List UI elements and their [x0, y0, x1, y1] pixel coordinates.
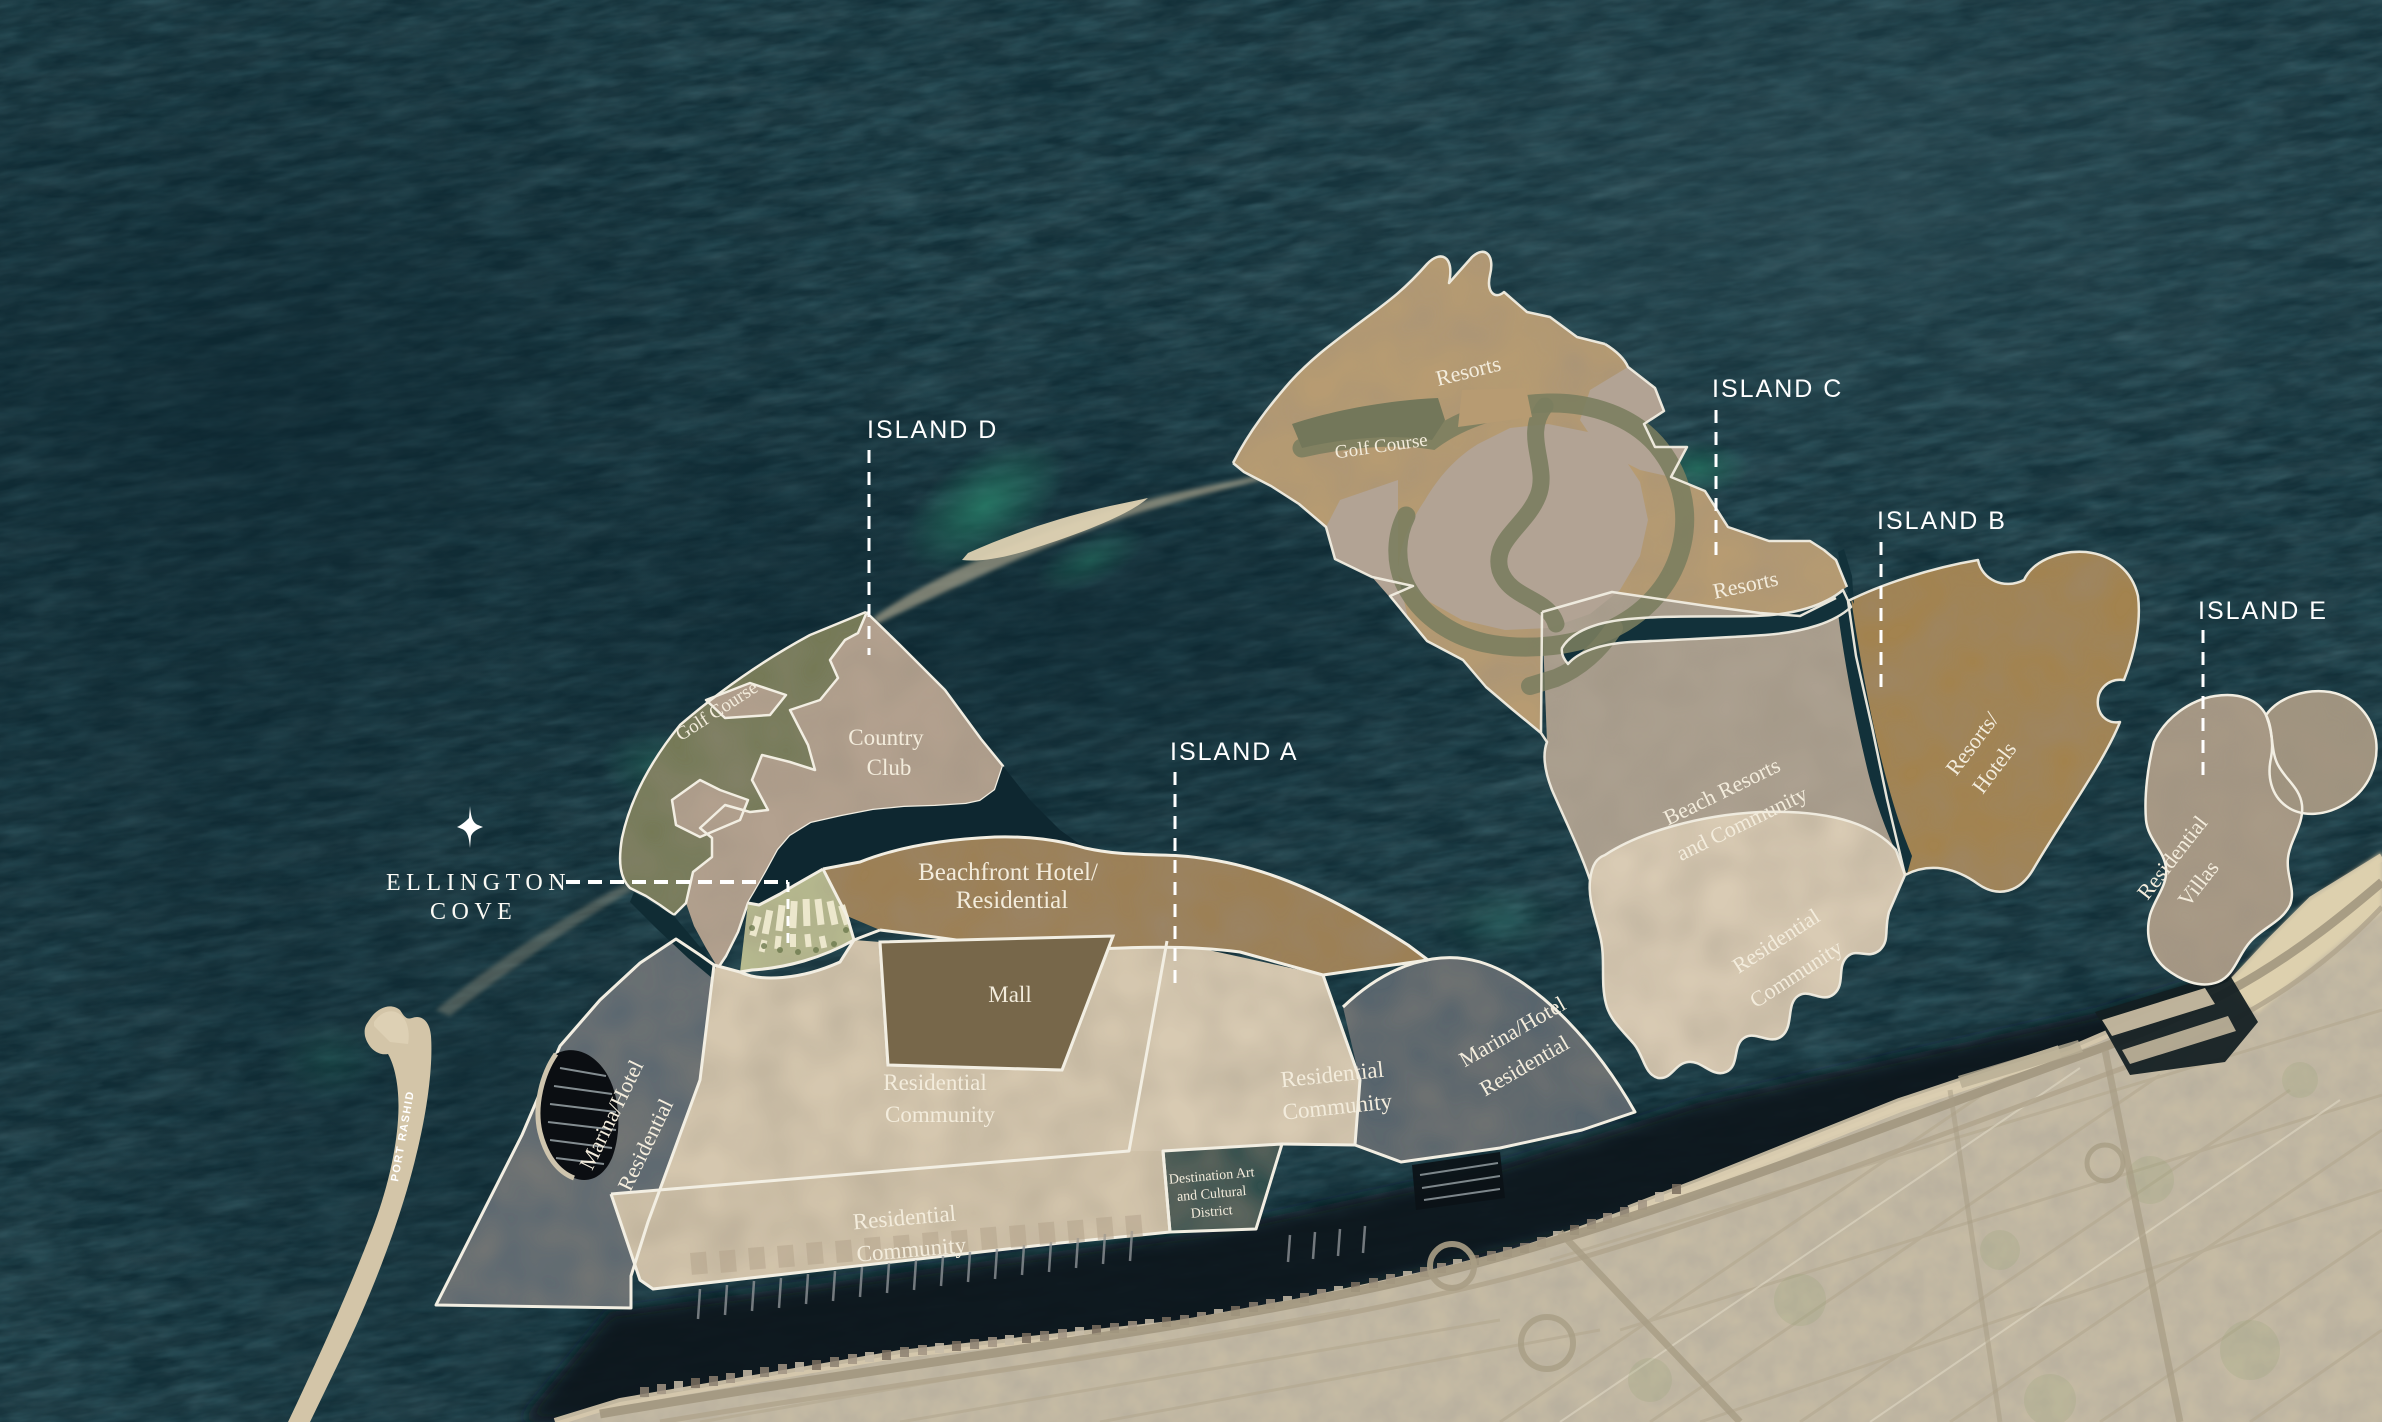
svg-text:COVE: COVE: [430, 899, 517, 925]
svg-text:ISLAND E: ISLAND E: [2198, 597, 2328, 625]
svg-text:Club: Club: [867, 755, 912, 780]
svg-text:Country: Country: [848, 725, 924, 750]
svg-text:ISLAND D: ISLAND D: [867, 416, 998, 444]
svg-text:ELLINGTON: ELLINGTON: [386, 870, 571, 896]
svg-text:Residential: Residential: [956, 887, 1069, 914]
svg-text:Mall: Mall: [988, 982, 1031, 1007]
svg-text:ISLAND A: ISLAND A: [1170, 738, 1299, 766]
svg-text:Residential: Residential: [883, 1070, 986, 1095]
svg-text:ISLAND C: ISLAND C: [1712, 375, 1843, 403]
svg-text:Community: Community: [885, 1102, 995, 1127]
svg-text:ISLAND B: ISLAND B: [1877, 507, 2007, 535]
svg-text:Beachfront Hotel/: Beachfront Hotel/: [918, 859, 1098, 886]
